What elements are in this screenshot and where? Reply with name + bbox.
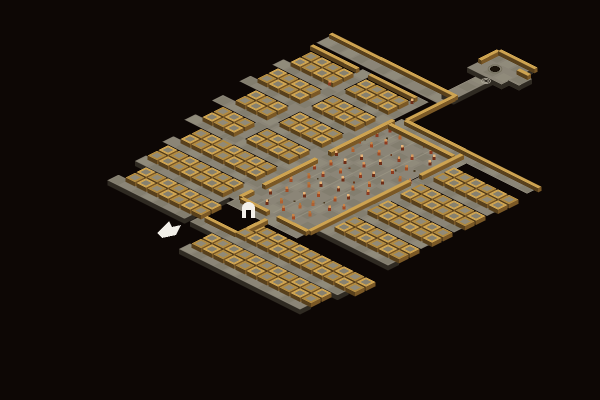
dwarf-sprite	[381, 181, 384, 184]
dwarf-sprite	[373, 172, 375, 174]
dwarf-sprite	[391, 171, 394, 174]
dwarf-sprite	[406, 165, 408, 167]
dwarf-sprite	[411, 157, 414, 160]
dwarf-sprite	[363, 162, 365, 164]
dwarf-sprite	[401, 147, 404, 150]
dwarf-sprite	[303, 192, 305, 194]
dwarf-sprite	[280, 198, 282, 200]
dwarf-sprite	[411, 155, 413, 157]
dwarf-sprite	[398, 157, 400, 159]
dwarf-sprite	[341, 178, 344, 181]
dwarf-sprite	[328, 208, 331, 211]
dwarf-sprite	[370, 144, 373, 147]
dwarf-sprite	[372, 174, 375, 177]
dwarf-sprite	[347, 194, 349, 196]
dwarf-sprite	[429, 150, 432, 153]
dwarf-sprite	[379, 159, 381, 161]
dwarf-sprite	[308, 173, 310, 175]
dwarf-sprite	[378, 150, 380, 152]
dwarf-sprite	[433, 157, 436, 160]
dwarf-sprite	[285, 188, 288, 191]
dwarf-sprite	[359, 175, 362, 178]
dwarf-sprite	[352, 185, 354, 187]
dwarf-sprite	[335, 153, 338, 156]
dwarf-sprite	[359, 173, 361, 175]
dwarf-sprite	[344, 158, 346, 160]
dwarf-sprite	[269, 189, 271, 191]
dwarf-sprite	[307, 184, 310, 187]
dwarf-sprite	[303, 194, 306, 197]
dwarf-sprite	[342, 176, 344, 178]
white-archway-notch	[246, 210, 251, 218]
dwarf-sprite	[368, 183, 371, 186]
debris-speck	[391, 154, 393, 156]
debris-speck	[395, 170, 397, 172]
dwarf-sprite	[379, 161, 382, 164]
dwarf-sprite	[312, 203, 315, 206]
dwarf-sprite	[347, 196, 350, 199]
dwarf-sprite	[399, 176, 401, 178]
dwarf-sprite	[319, 183, 322, 186]
dwarf-sprite	[317, 193, 320, 196]
dwarf-sprite	[399, 136, 402, 139]
dwarf-sprite	[334, 198, 337, 201]
dwarf-sprite	[269, 191, 272, 194]
dwarf-sprite	[322, 172, 324, 174]
dwarf-sprite	[312, 201, 314, 203]
dwarf-sprite	[329, 206, 331, 208]
dwarf-sprite	[334, 196, 336, 198]
dwarf-sprite	[344, 160, 347, 163]
dwarf-sprite	[385, 139, 387, 141]
dwarf-sprite	[352, 147, 354, 149]
dwarf-sprite	[362, 164, 365, 167]
debris-speck	[317, 178, 319, 180]
dwarf-sprite	[308, 182, 310, 184]
dwarf-sprite	[308, 213, 311, 216]
dwarf-sprite	[411, 98, 413, 100]
dwarf-sprite	[307, 175, 310, 178]
dwarf-sprite	[343, 206, 346, 209]
dwarf-sprite	[337, 186, 339, 188]
dwarf-sprite	[299, 205, 302, 208]
dwarf-sprite	[340, 168, 342, 170]
dwarf-sprite	[292, 216, 295, 219]
debris-speck	[414, 170, 416, 172]
dwarf-sprite	[351, 149, 354, 152]
dwarf-sprite	[367, 190, 369, 192]
dwarf-sprite	[266, 200, 268, 202]
dwarf-sprite	[367, 192, 370, 195]
dwarf-sprite	[320, 181, 322, 183]
dwarf-sprite	[360, 155, 362, 157]
dwarf-sprite	[309, 211, 311, 213]
dwarf-sprite	[391, 169, 393, 171]
debris-speck	[353, 182, 355, 184]
dwarf-sprite	[351, 187, 354, 190]
debris-speck	[323, 202, 325, 204]
debris-speck	[349, 167, 351, 169]
well-hole	[490, 66, 500, 72]
dwarf-sprite	[322, 174, 325, 177]
dwarf-sprite	[429, 160, 431, 162]
game-viewport[interactable]	[0, 0, 600, 400]
dwarf-sprite	[328, 82, 331, 85]
dwarf-sprite	[337, 188, 340, 191]
dwarf-sprite	[398, 159, 401, 162]
dwarf-sprite	[381, 179, 383, 181]
dwarf-sprite	[292, 214, 294, 216]
isometric-scene	[0, 0, 600, 400]
dwarf-sprite	[370, 142, 372, 144]
dwarf-sprite	[343, 204, 345, 206]
dwarf-sprite	[286, 186, 288, 188]
debris-speck	[386, 138, 388, 140]
dwarf-sprite	[360, 157, 363, 160]
dwarf-sprite	[266, 202, 269, 205]
dwarf-sprite	[318, 191, 320, 193]
dwarf-sprite	[411, 100, 414, 103]
debris-speck	[294, 200, 296, 202]
dwarf-sprite	[299, 203, 301, 205]
dwarf-sprite	[428, 162, 431, 165]
dwarf-sprite	[335, 151, 337, 153]
dwarf-sprite	[282, 208, 285, 211]
dwarf-sprite	[329, 162, 332, 165]
cursor-arrow	[157, 221, 181, 238]
dwarf-sprite	[330, 160, 332, 162]
dwarf-sprite	[329, 80, 331, 82]
dwarf-sprite	[405, 167, 408, 170]
dwarf-sprite	[401, 145, 403, 147]
dwarf-sprite	[290, 179, 293, 182]
dwarf-sprite	[368, 181, 370, 183]
dwarf-sprite	[313, 166, 316, 169]
dwarf-sprite	[280, 200, 283, 203]
dwarf-sprite	[378, 152, 381, 155]
dwarf-sprite	[399, 178, 402, 181]
dwarf-sprite	[282, 206, 284, 208]
dwarf-sprite	[384, 141, 387, 144]
dwarf-sprite	[433, 155, 435, 157]
dwarf-sprite	[339, 170, 342, 173]
